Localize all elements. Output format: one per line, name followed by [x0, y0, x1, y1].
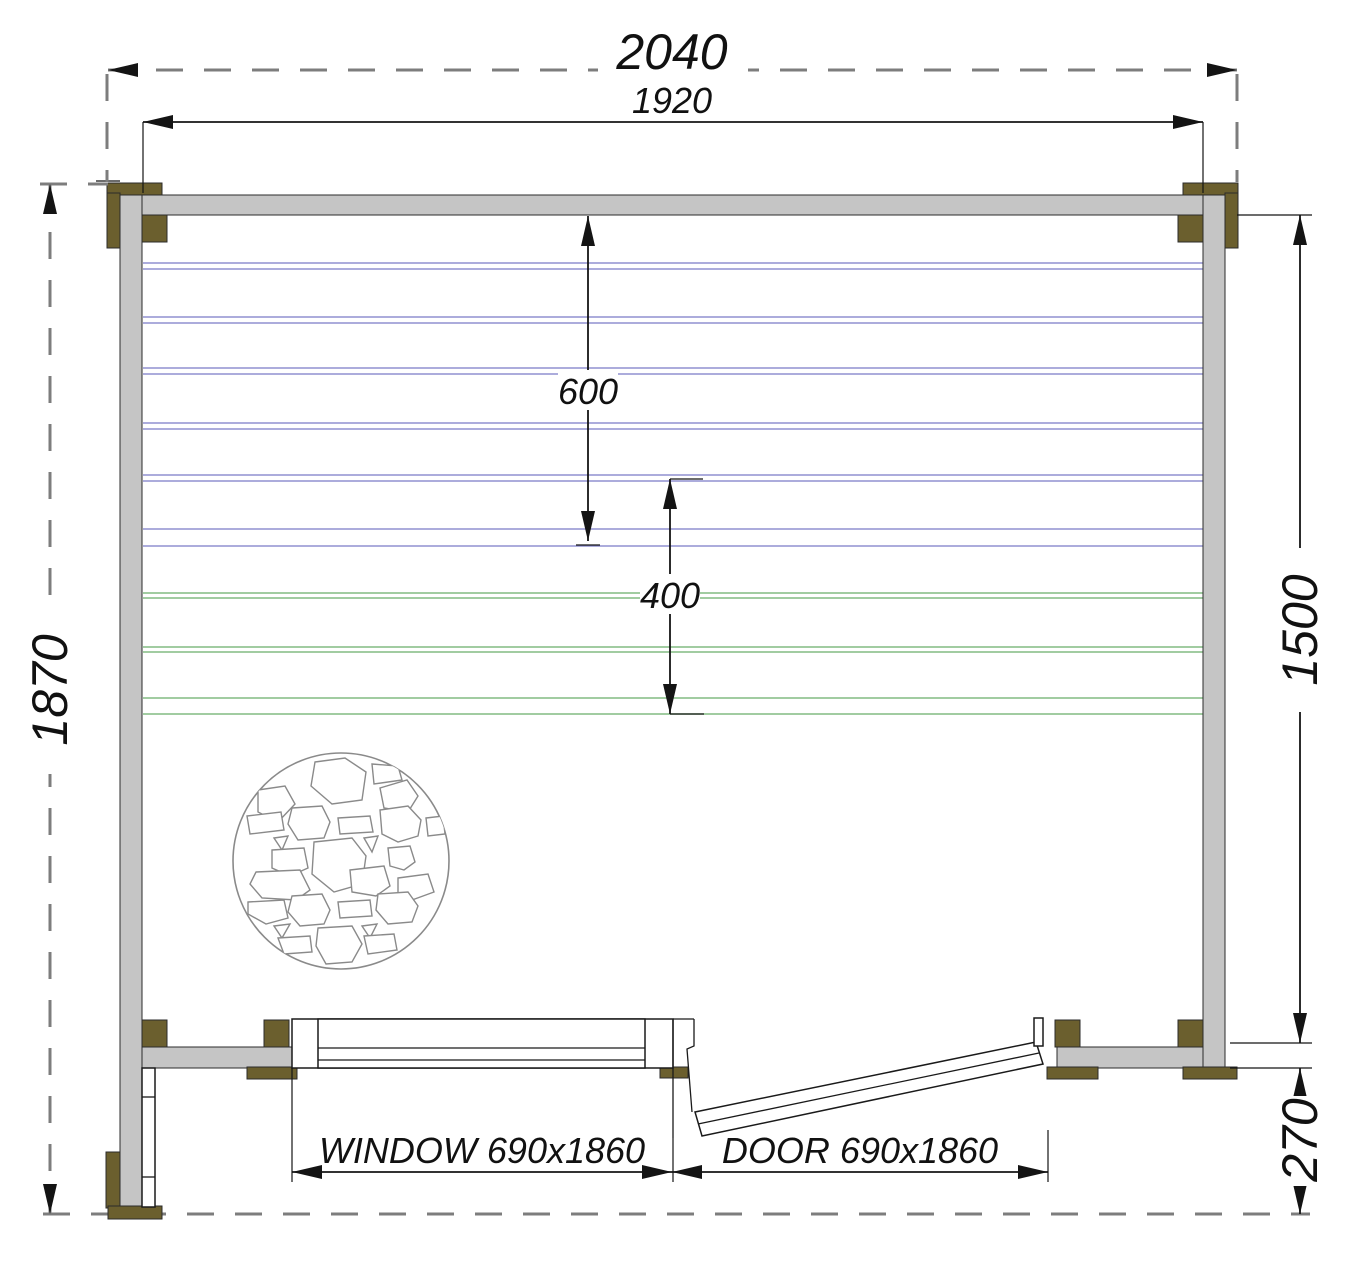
door — [673, 1018, 1043, 1138]
door-post — [1055, 1020, 1080, 1047]
sill-plate — [247, 1067, 297, 1079]
corner-post — [107, 193, 120, 248]
corner-post — [1178, 215, 1203, 242]
upper-bench-depth-label: 600 — [558, 371, 618, 412]
right-wall — [1203, 195, 1225, 1068]
porch-post — [106, 1152, 120, 1208]
top-wall — [120, 195, 1225, 215]
floor-plan-drawing: 2040 1920 1870 1500 270 600 400 WINDOW 6… — [0, 0, 1352, 1278]
porch-sidelight — [142, 1068, 155, 1207]
bottom-wall-left-segment — [142, 1047, 292, 1068]
window-label: WINDOW 690x1860 — [319, 1130, 645, 1171]
corner-post — [142, 215, 167, 242]
heater-stones — [233, 753, 449, 969]
window-post — [264, 1020, 289, 1047]
left-wall — [120, 195, 142, 1207]
overall-width-label: 2040 — [615, 24, 727, 80]
door-jamb-right — [1034, 1018, 1043, 1046]
left-height-label: 1870 — [22, 634, 78, 745]
sill-plate — [1047, 1067, 1098, 1079]
frame-width-label: 1920 — [632, 80, 712, 121]
corner-post — [142, 1020, 167, 1047]
right-height-label: 1500 — [1272, 574, 1328, 685]
lower-bench-depth-label: 400 — [640, 575, 700, 616]
door-label: DOOR 690x1860 — [722, 1130, 998, 1171]
upper-bench-boards — [143, 263, 1203, 546]
floor-plan-canvas: 2040 1920 1870 1500 270 600 400 WINDOW 6… — [0, 0, 1352, 1278]
bottom-wall-right-segment — [1057, 1047, 1203, 1068]
dimension-lines — [50, 70, 1300, 1214]
porch-base-plate — [108, 1206, 162, 1219]
corner-post — [1225, 193, 1238, 248]
corner-post — [1178, 1020, 1203, 1047]
window — [292, 1019, 673, 1068]
porch-depth-label: 270 — [1272, 1098, 1328, 1183]
sill-plate — [1183, 1067, 1237, 1079]
extension-lines — [40, 74, 1312, 1182]
